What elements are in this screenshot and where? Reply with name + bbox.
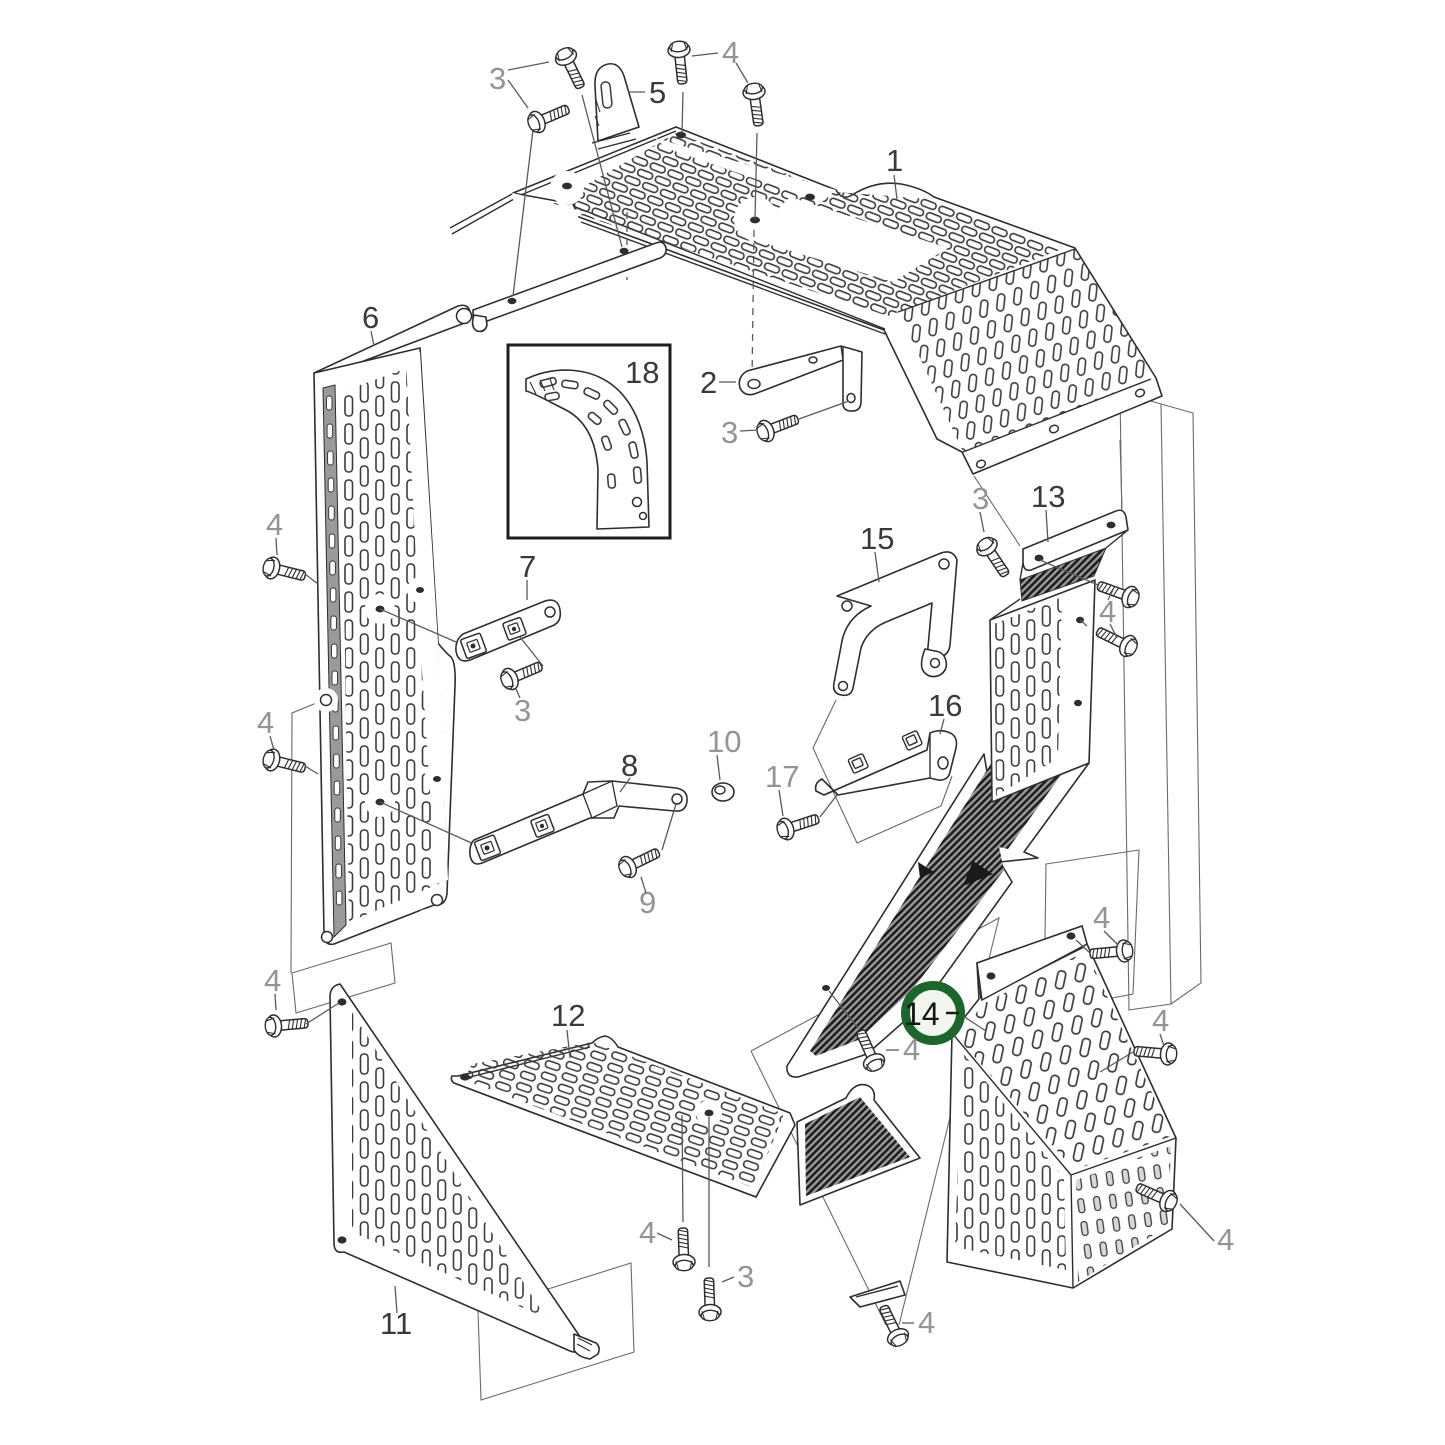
- svg-text:7: 7: [519, 549, 536, 584]
- svg-text:4: 4: [266, 507, 283, 542]
- svg-text:3: 3: [489, 61, 506, 96]
- svg-text:14: 14: [904, 996, 940, 1032]
- svg-text:4: 4: [1217, 1222, 1234, 1257]
- svg-text:3: 3: [514, 693, 531, 728]
- svg-text:15: 15: [860, 521, 894, 556]
- svg-text:10: 10: [707, 724, 741, 759]
- svg-text:16: 16: [928, 688, 962, 723]
- svg-text:3: 3: [972, 481, 989, 516]
- svg-text:4: 4: [918, 1305, 935, 1340]
- svg-text:4: 4: [264, 963, 281, 998]
- svg-text:4: 4: [257, 705, 274, 740]
- svg-text:6: 6: [362, 300, 379, 335]
- svg-text:3: 3: [737, 1259, 754, 1294]
- svg-text:5: 5: [649, 75, 666, 110]
- svg-text:17: 17: [765, 759, 799, 794]
- svg-text:2: 2: [700, 365, 717, 400]
- svg-text:18: 18: [625, 355, 659, 390]
- svg-text:4: 4: [903, 1032, 920, 1067]
- svg-text:12: 12: [551, 998, 585, 1033]
- svg-text:13: 13: [1031, 479, 1065, 514]
- svg-text:4: 4: [639, 1215, 656, 1250]
- svg-text:1: 1: [886, 143, 903, 178]
- svg-text:4: 4: [1093, 900, 1110, 935]
- svg-text:4: 4: [1099, 594, 1116, 629]
- svg-text:3: 3: [721, 415, 738, 450]
- svg-text:11: 11: [380, 1306, 412, 1341]
- svg-text:9: 9: [639, 885, 656, 920]
- svg-text:4: 4: [1152, 1003, 1169, 1038]
